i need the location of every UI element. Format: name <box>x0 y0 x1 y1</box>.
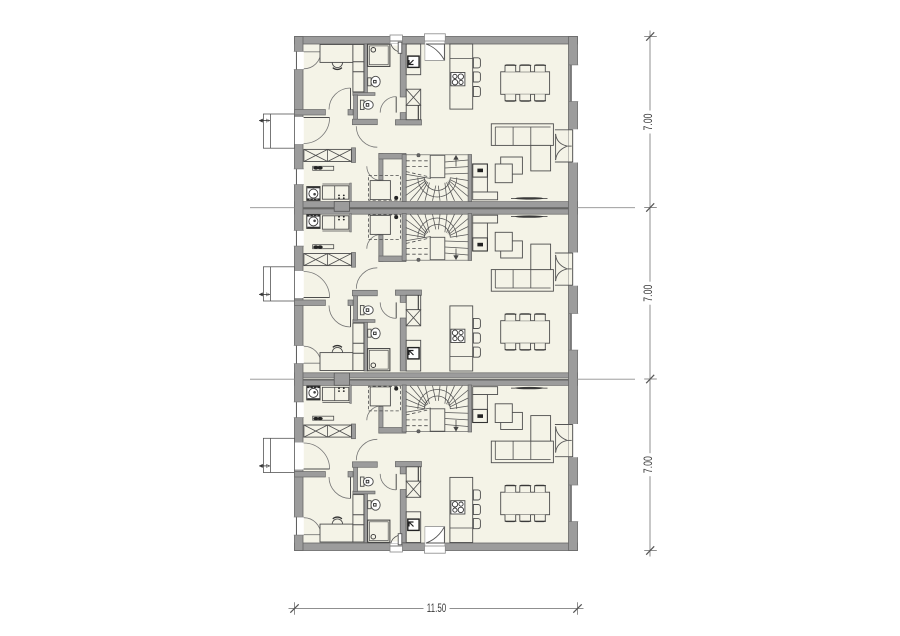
svg-text:7.00: 7.00 <box>641 285 655 302</box>
svg-text:7.00: 7.00 <box>641 456 655 473</box>
svg-text:7.00: 7.00 <box>641 113 655 130</box>
svg-text:11.50: 11.50 <box>427 603 447 615</box>
